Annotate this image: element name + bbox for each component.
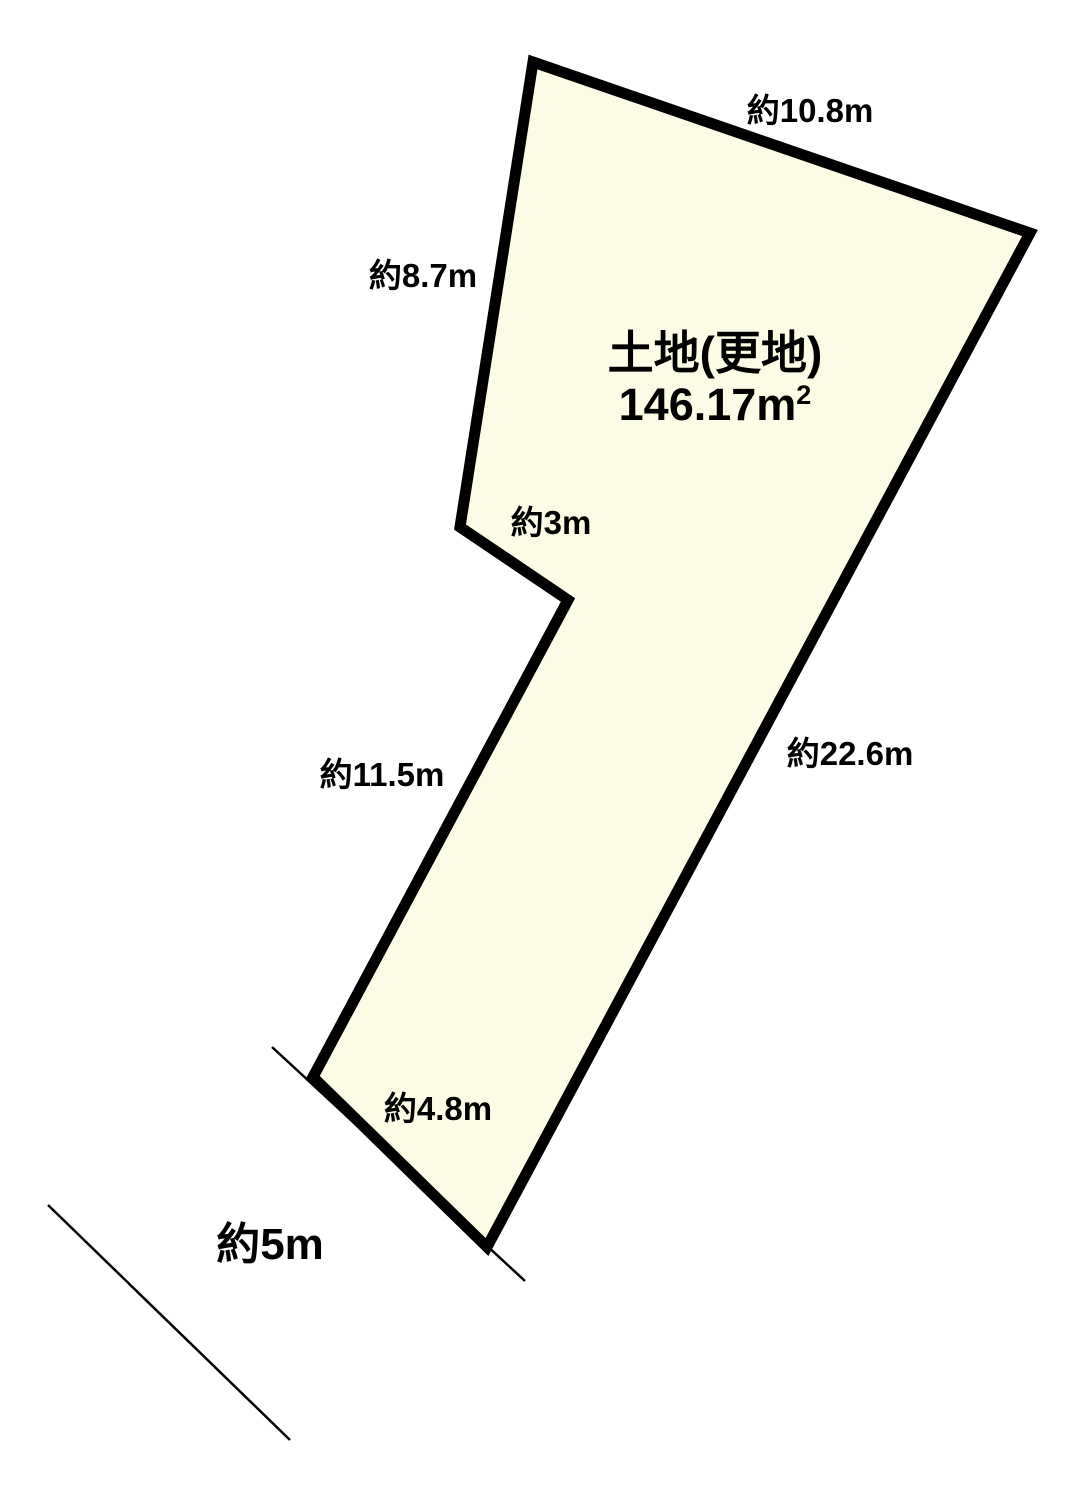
dimension-lower-left-edge: 約11.5m (320, 748, 445, 796)
parcel-title: 土地(更地) (608, 328, 823, 380)
dimension-right-edge: 約22.6m (787, 727, 914, 775)
land-plot-diagram: 約10.8m 約8.7m 約3m 約11.5m 約22.6m 約4.8m 約5m… (0, 0, 1077, 1508)
parcel-area-value: 146.17m (619, 379, 797, 430)
dimension-road-width: 約5m (216, 1208, 324, 1272)
dimension-bottom-edge: 約4.8m (384, 1082, 492, 1130)
plot-drawing (0, 0, 1077, 1508)
parcel-area-exponent: 2 (796, 380, 811, 410)
dimension-notch-edge: 約3m (511, 496, 592, 544)
parcel-label: 土地(更地) 146.17m2 (608, 328, 823, 430)
land-parcel-polygon (313, 62, 1030, 1247)
dimension-top-edge: 約10.8m (747, 84, 874, 132)
dimension-upper-left-edge: 約8.7m (369, 249, 477, 297)
parcel-area: 146.17m2 (608, 380, 823, 430)
